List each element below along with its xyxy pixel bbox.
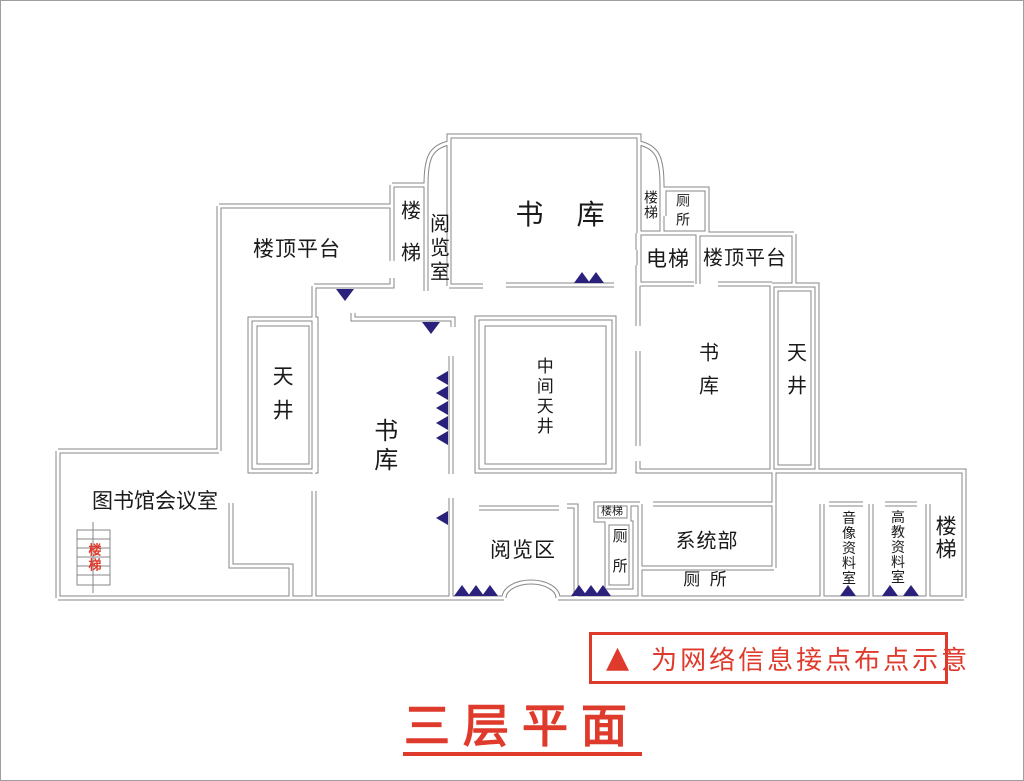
network-point-icon [468, 585, 484, 596]
room-label-stairs-top-right: 楼梯 [642, 190, 658, 220]
network-point-icon [336, 289, 354, 301]
room-label-stacks-left: 书库 [369, 418, 397, 476]
legend-text: 为网络信息接点布点示意 [651, 640, 970, 677]
page-title: 三层平面 [404, 690, 640, 756]
network-point-icon [882, 585, 898, 596]
network-point-icon [436, 401, 448, 415]
room-label-toilet-bottom: 厕 所 [683, 571, 728, 591]
network-point-icon [436, 511, 448, 525]
room-label-toilet-top-right: 厕所 [674, 193, 690, 231]
network-point-icon [422, 322, 440, 334]
room-label-roof-terrace-left: 楼顶平台 [253, 237, 341, 261]
room-label-courtyard-right: 天井 [784, 342, 807, 408]
legend: ▲ 为网络信息接点布点示意 [589, 632, 948, 684]
network-point-icon [454, 585, 470, 596]
network-point-icon [482, 585, 498, 596]
room-label-higher-ed-archive: 高教资料室 [889, 510, 905, 585]
floorplan-canvas: 书 库 楼顶平台 楼梯 阅览室 楼梯 厕所 电梯 楼顶平台 天井 书库 中间天井… [0, 0, 1024, 781]
walls [58, 136, 964, 598]
network-point-icon [436, 371, 448, 385]
network-point-icon [840, 585, 856, 596]
network-point-legend-icon: ▲ [606, 643, 629, 673]
room-label-stacks-top: 书 库 [516, 199, 617, 231]
room-label-reading-room-top: 阅览室 [427, 213, 450, 285]
network-point-icon [436, 416, 448, 430]
room-label-av-archive: 音像资料室 [840, 511, 856, 586]
room-label-courtyard-center: 中间天井 [532, 357, 552, 437]
room-label-roof-terrace-right: 楼顶平台 [703, 247, 787, 270]
room-label-systems-dept: 系统部 [676, 530, 739, 553]
room-label-reading-area: 阅览区 [490, 538, 556, 562]
room-label-toilet-center: 厕所 [610, 528, 627, 588]
network-point-icon [436, 386, 448, 400]
room-label-stairs-left-red: 楼梯 [85, 543, 100, 573]
network-point-icon [588, 272, 604, 283]
room-label-courtyard-left: 天井 [270, 365, 294, 433]
network-point-icon [436, 431, 448, 445]
room-label-elevator: 电梯 [646, 247, 690, 271]
room-label-meeting-room: 图书馆会议室 [92, 489, 218, 513]
room-label-stairs-top-mid: 楼梯 [398, 200, 421, 284]
title-underline [403, 752, 642, 756]
network-point-icon [574, 272, 590, 283]
room-label-stairs-center-small: 楼梯 [601, 506, 623, 519]
network-point-icon [903, 585, 919, 596]
room-label-stairs-bottom-right: 楼梯 [933, 515, 957, 561]
room-label-stacks-right: 书库 [696, 342, 719, 408]
